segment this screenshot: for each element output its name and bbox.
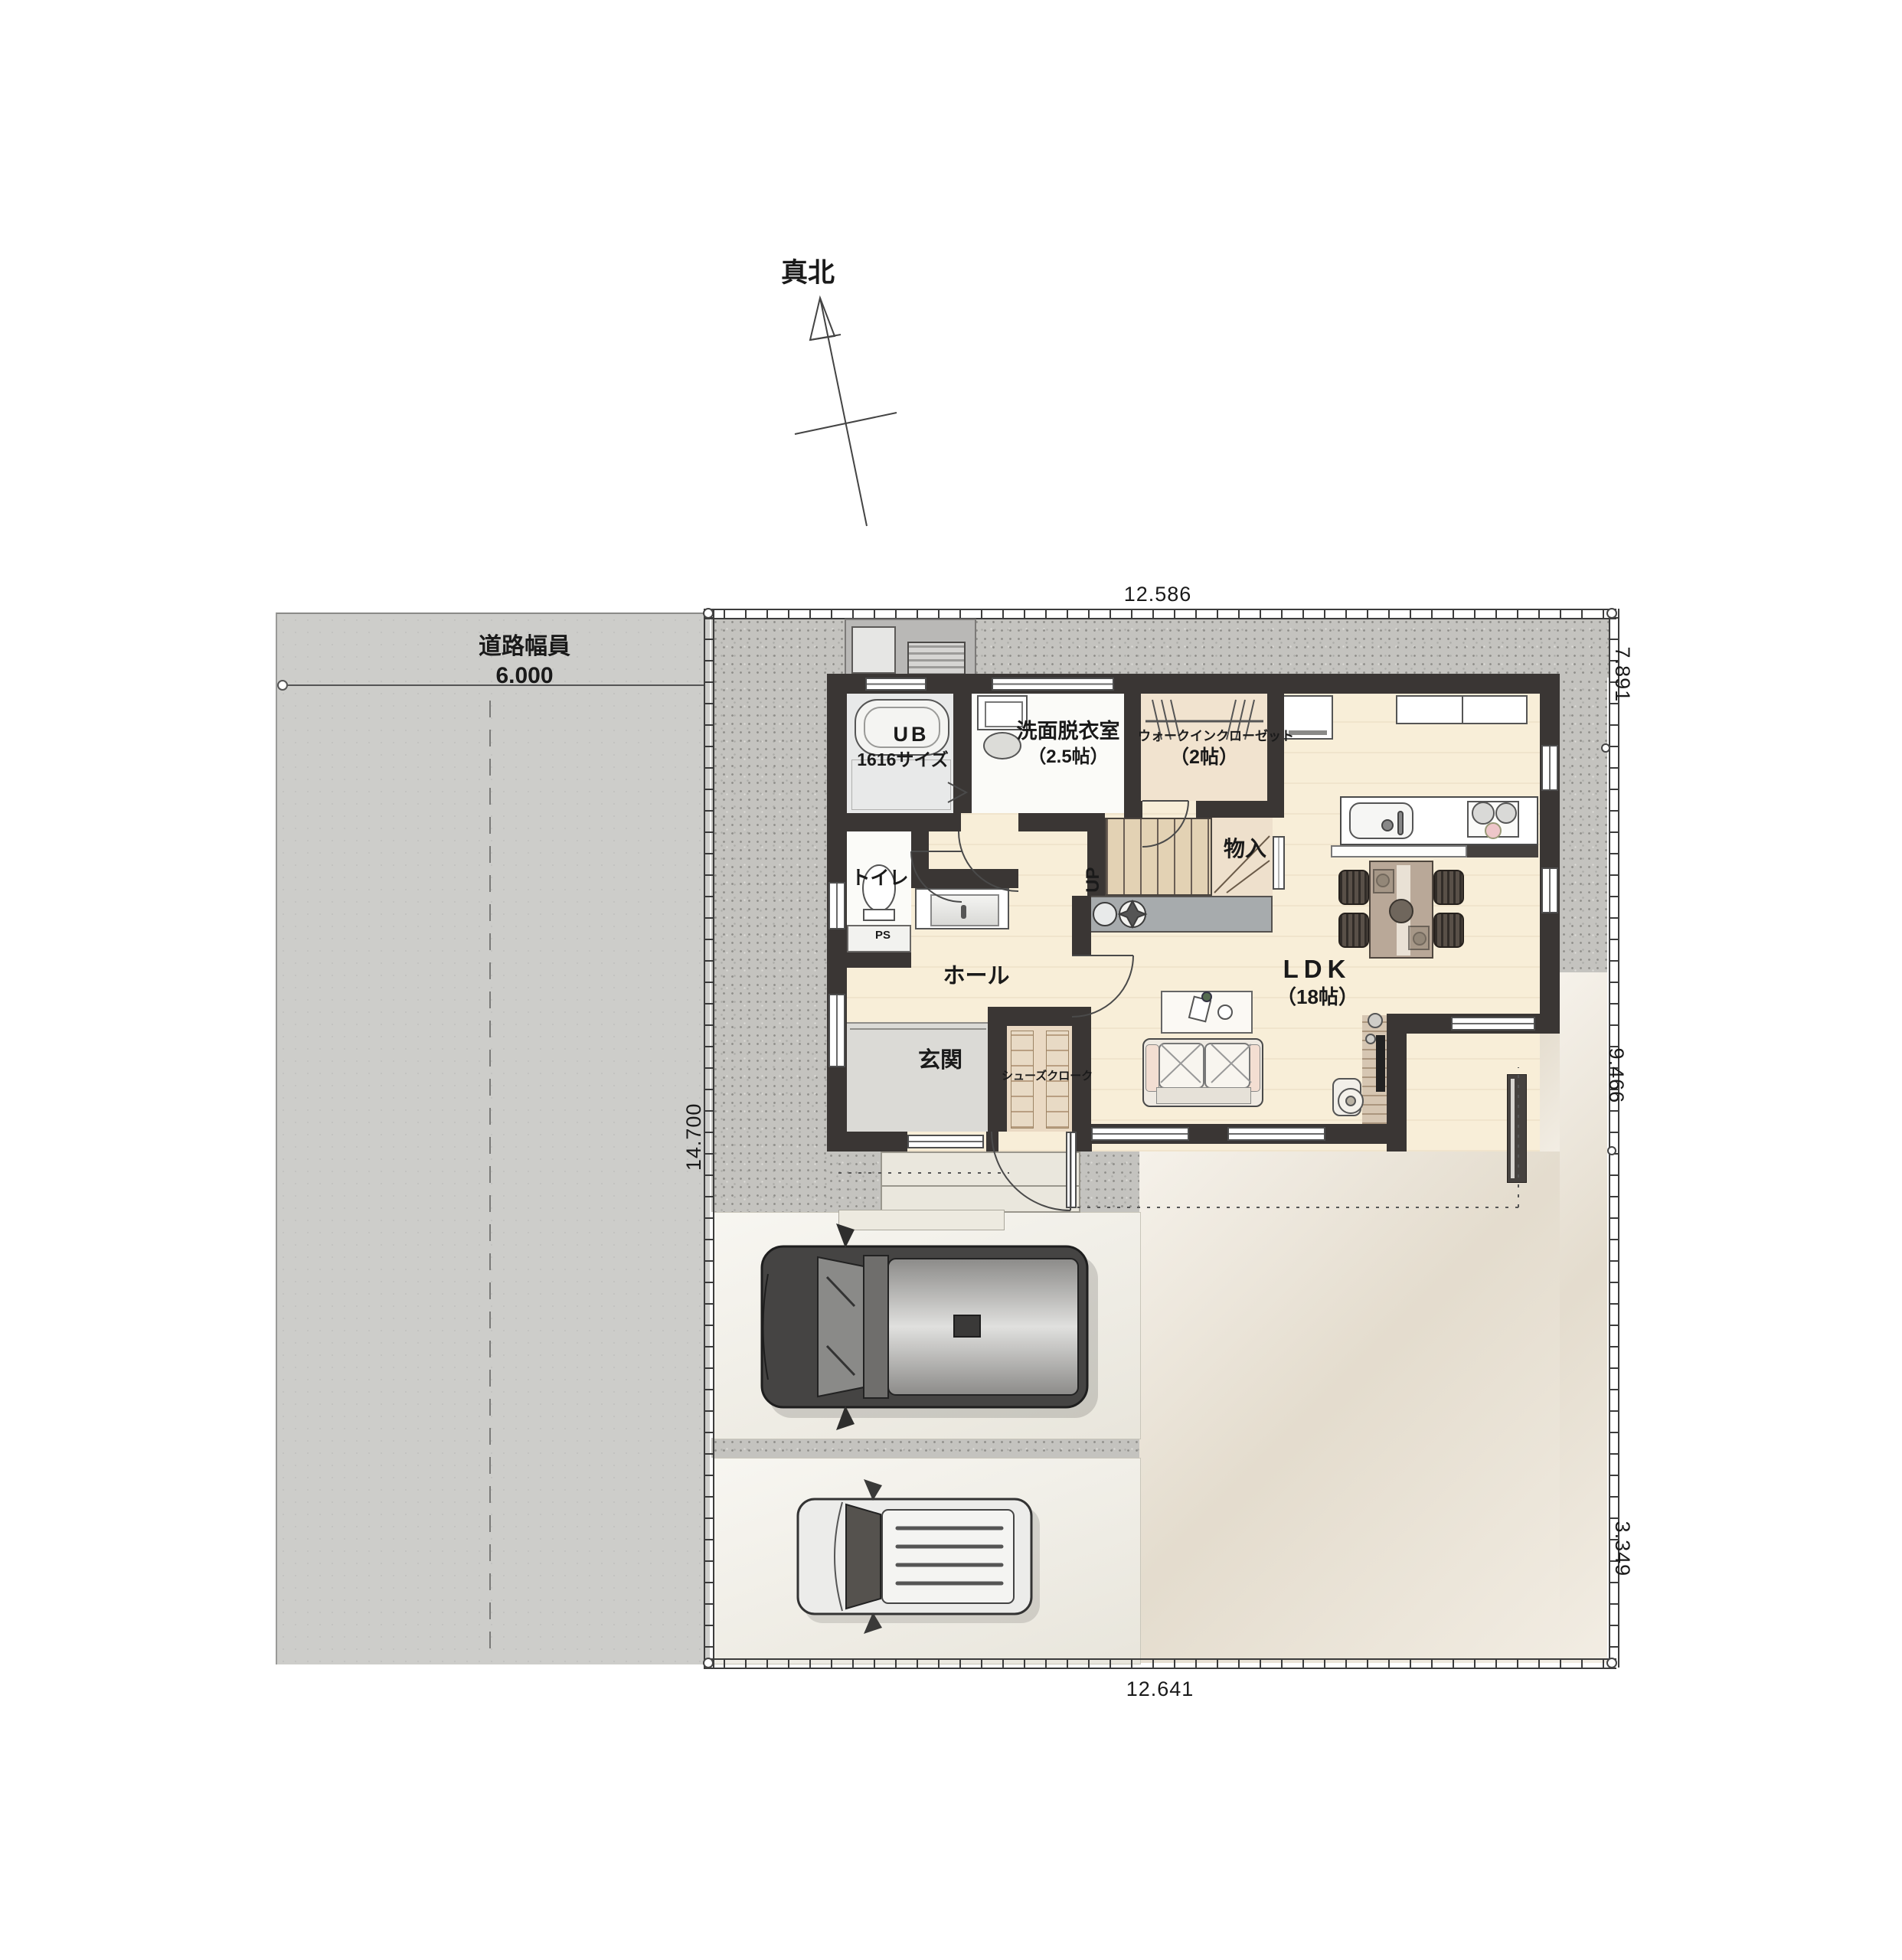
floor-plan-canvas: 真北 道路幅員 6.000 12.586 12.641 14.700 7.891… bbox=[0, 0, 1902, 1960]
car-light-van bbox=[798, 1479, 1040, 1634]
label-ldk: LDK bbox=[1267, 955, 1367, 983]
sofa-stitching bbox=[1161, 1044, 1251, 1083]
road-width-value: 6.000 bbox=[463, 663, 586, 688]
coffee-table-deco-icons bbox=[1189, 992, 1232, 1021]
label-ps: PS bbox=[868, 929, 898, 942]
compass-label: 真北 bbox=[770, 259, 846, 289]
road-name-label: 道路幅員 bbox=[452, 634, 597, 659]
label-hall: ホール bbox=[923, 965, 1030, 989]
label-stairs-up: UP bbox=[1083, 857, 1103, 903]
ub-folding-door bbox=[948, 782, 966, 802]
tableware-icons bbox=[1374, 870, 1429, 949]
stove-burners-icon bbox=[1472, 802, 1516, 838]
label-ldk-size: （18帖） bbox=[1266, 986, 1369, 1008]
car-dark-van bbox=[762, 1223, 1098, 1430]
dimension-top: 12.586 bbox=[1089, 583, 1227, 606]
dimension-bottom: 12.641 bbox=[1091, 1678, 1229, 1701]
label-wic-size: （2帖） bbox=[1160, 747, 1248, 769]
entrance-door-arc bbox=[992, 1132, 1070, 1210]
label-wic: ウォークインクローゼット bbox=[1138, 730, 1271, 744]
label-ub: UB bbox=[881, 724, 942, 746]
senmen-door-arc bbox=[959, 831, 1018, 891]
dimension-right-top: 7.891 bbox=[1610, 627, 1633, 722]
label-ub-size: 1616サイズ bbox=[845, 750, 960, 769]
label-toilet: トイレ bbox=[835, 868, 925, 890]
label-senmen-size: （2.5帖） bbox=[1015, 747, 1122, 767]
tv-nook-deco-icons bbox=[1338, 1014, 1382, 1113]
counter-sink-icons bbox=[1093, 901, 1145, 927]
eave-dashed-lines bbox=[838, 1067, 1518, 1207]
dimension-right-middle: 9.466 bbox=[1604, 1028, 1627, 1123]
label-shoecloak: シューズクローク bbox=[1002, 1070, 1078, 1083]
door-arcs bbox=[911, 782, 1188, 1210]
dimension-left: 14.700 bbox=[683, 1089, 706, 1184]
label-senmen: 洗面脱衣室 bbox=[992, 720, 1145, 743]
wic-door-arc bbox=[1142, 801, 1188, 847]
label-monoire: 物入 bbox=[1214, 838, 1276, 861]
dimension-right-bottom: 3.349 bbox=[1610, 1501, 1633, 1596]
hall-ldk-door-arc bbox=[1072, 955, 1133, 1017]
north-arrow-icon bbox=[795, 298, 897, 526]
label-genkan: 玄関 bbox=[902, 1049, 979, 1073]
sink-faucet-icon bbox=[1382, 812, 1403, 835]
